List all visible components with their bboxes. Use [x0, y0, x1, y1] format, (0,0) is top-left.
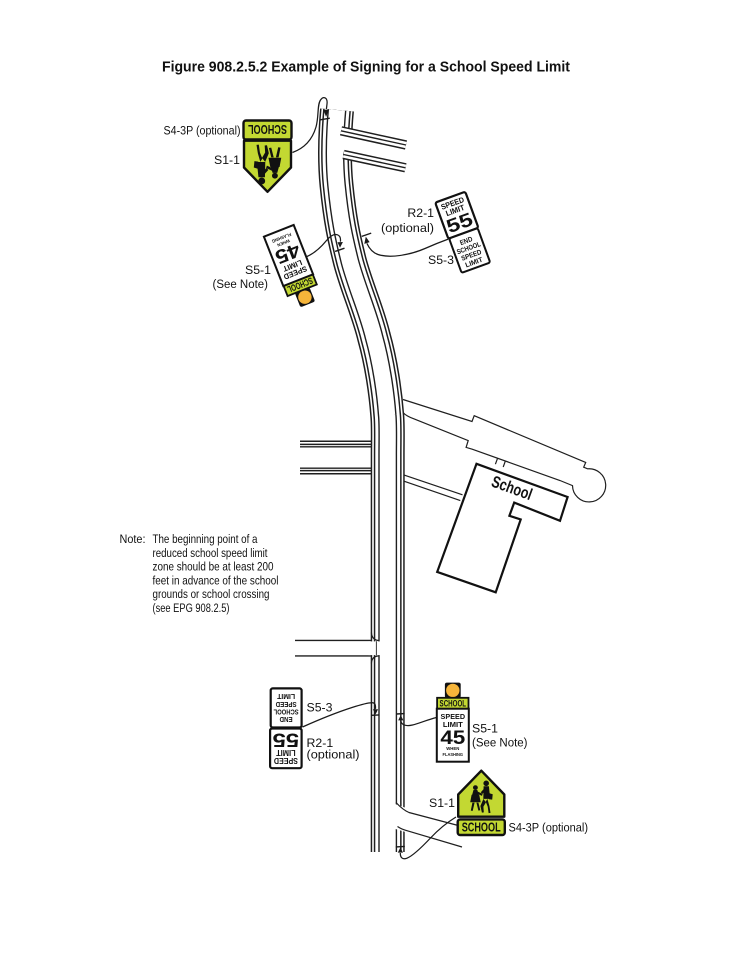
svg-text:The beginning point of a: The beginning point of a	[153, 532, 258, 546]
svg-text:S5-1: S5-1	[245, 263, 271, 277]
svg-text:(optional): (optional)	[307, 748, 360, 762]
svg-text:(optional): (optional)	[381, 221, 434, 235]
svg-text:LIMIT: LIMIT	[276, 692, 295, 699]
svg-text:zone should be at least 200: zone should be at least 200	[153, 560, 274, 574]
svg-text:55: 55	[272, 729, 299, 750]
svg-text:(See Note): (See Note)	[213, 277, 269, 291]
svg-text:WHEN: WHEN	[446, 746, 459, 751]
svg-text:reduced school speed limit: reduced school speed limit	[153, 546, 268, 560]
svg-text:feet in advance of the school: feet in advance of the school	[153, 573, 279, 587]
svg-text:S1-1: S1-1	[429, 796, 455, 810]
svg-text:Note:: Note:	[120, 532, 146, 546]
svg-text:S5-1: S5-1	[472, 722, 498, 736]
svg-text:R2-1: R2-1	[407, 206, 434, 220]
svg-text:SCHOOL: SCHOOL	[440, 699, 467, 709]
svg-text:SPEED: SPEED	[276, 700, 297, 707]
svg-text:SCHOOL: SCHOOL	[248, 122, 287, 136]
svg-text:Figure 908.2.5.2 Example of Si: Figure 908.2.5.2 Example of Signing for …	[162, 60, 570, 76]
svg-text:S1-1: S1-1	[214, 153, 240, 167]
svg-text:SCHOOL: SCHOOL	[273, 707, 299, 714]
svg-text:S5-3: S5-3	[307, 701, 333, 715]
svg-text:S5-3: S5-3	[428, 253, 454, 267]
svg-text:FLASHING: FLASHING	[443, 752, 464, 757]
svg-text:S4-3P (optional): S4-3P (optional)	[509, 821, 589, 835]
svg-text:grounds or school crossing: grounds or school crossing	[153, 587, 270, 601]
svg-text:(see EPG 908.2.5): (see EPG 908.2.5)	[153, 601, 230, 615]
svg-text:SCHOOL: SCHOOL	[462, 821, 501, 835]
svg-text:S4-3P (optional): S4-3P (optional)	[164, 124, 241, 138]
svg-text:(See Note): (See Note)	[472, 736, 528, 750]
svg-text:END: END	[280, 715, 293, 722]
